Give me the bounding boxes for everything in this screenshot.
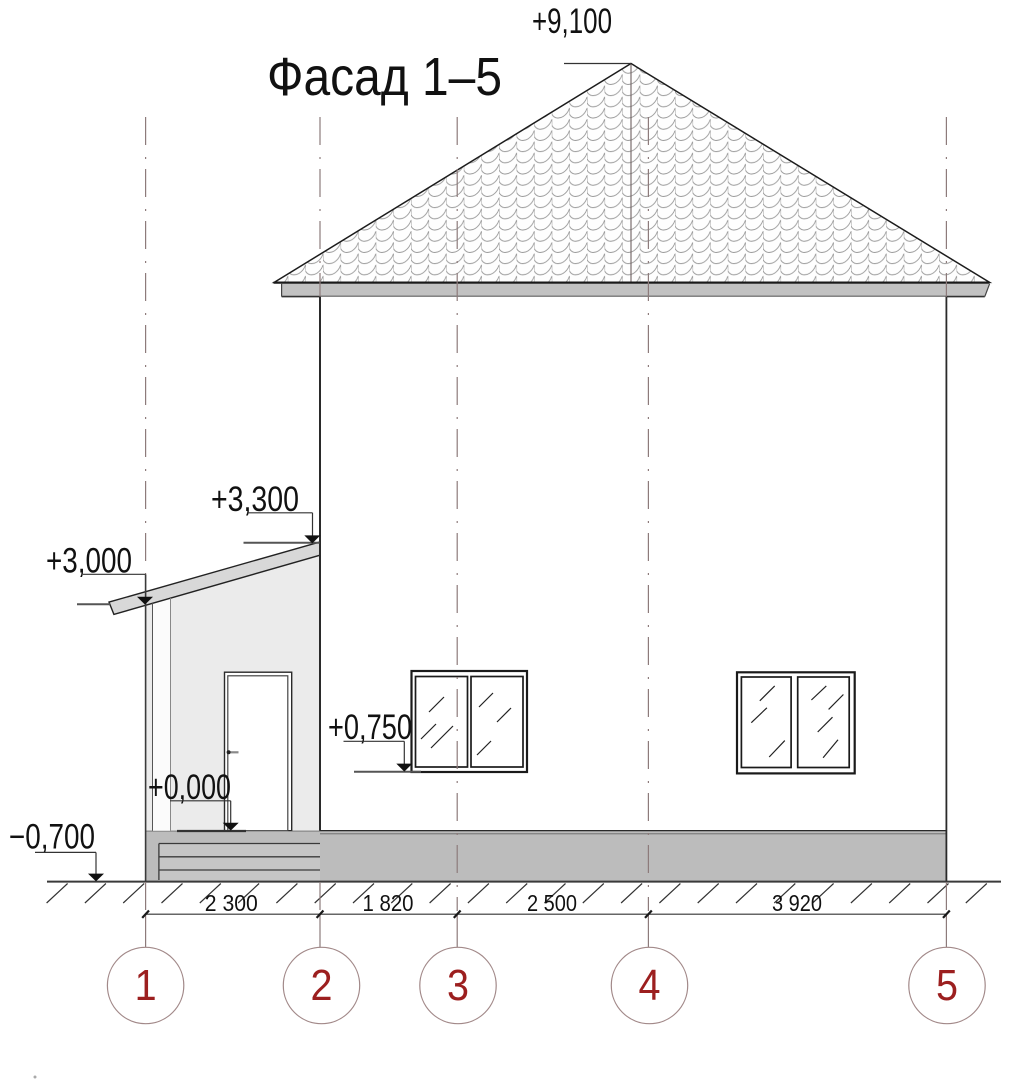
svg-text:1 820: 1 820 bbox=[363, 890, 414, 916]
svg-text:3 920: 3 920 bbox=[772, 890, 822, 916]
svg-text:Фасад 1–5: Фасад 1–5 bbox=[267, 47, 502, 107]
svg-text:3: 3 bbox=[447, 962, 469, 1010]
svg-text:4: 4 bbox=[639, 962, 661, 1010]
svg-text:−0,700: −0,700 bbox=[9, 818, 95, 857]
svg-text:+9,100: +9,100 bbox=[532, 2, 612, 41]
svg-text:2 500: 2 500 bbox=[527, 890, 577, 916]
svg-text:2 300: 2 300 bbox=[205, 890, 258, 916]
svg-text:5: 5 bbox=[936, 962, 958, 1010]
svg-text:1: 1 bbox=[135, 962, 157, 1010]
svg-text:2: 2 bbox=[311, 962, 333, 1010]
